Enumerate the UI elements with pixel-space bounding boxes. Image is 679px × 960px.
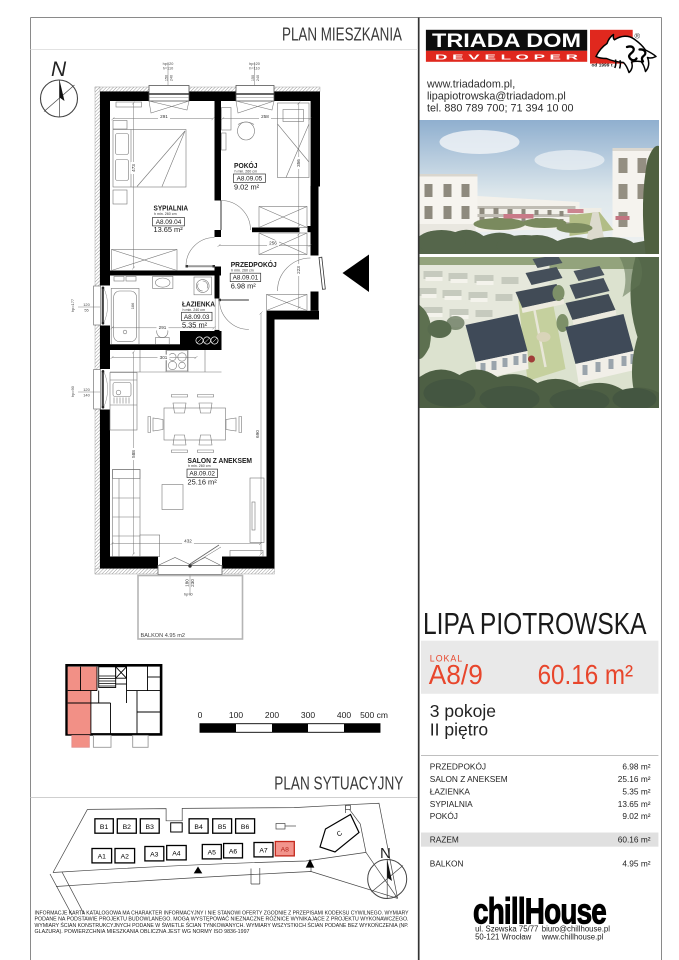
svg-text:hp=177: hp=177: [70, 299, 75, 312]
svg-text:6.98 m²: 6.98 m²: [231, 281, 257, 290]
svg-text:GLAZURA). POWIERZCHNIA MIESZKA: GLAZURA). POWIERZCHNIA MIESZKANIA OBLICZ…: [35, 929, 250, 935]
svg-text:500 cm: 500 cm: [360, 710, 388, 720]
svg-text:240: 240: [170, 75, 174, 81]
svg-text:h min. 240 cm: h min. 240 cm: [183, 308, 206, 312]
svg-text:POKÓJ: POKÓJ: [430, 811, 458, 821]
svg-text:D E V E L O P E R: D E V E L O P E R: [435, 52, 579, 61]
svg-text:hp=90: hp=90: [70, 385, 75, 397]
svg-text:A7: A7: [259, 848, 268, 855]
svg-text:h min. 260 cm: h min. 260 cm: [231, 268, 254, 272]
svg-text:25.16 m²: 25.16 m²: [188, 477, 218, 486]
svg-text:13.65 m²: 13.65 m²: [618, 799, 651, 809]
svg-text:B2: B2: [123, 824, 132, 831]
svg-text:258: 258: [261, 114, 269, 119]
svg-text:180: 180: [185, 579, 190, 587]
svg-text:240: 240: [256, 75, 260, 81]
svg-text:291: 291: [160, 114, 168, 119]
svg-text:301: 301: [160, 355, 168, 360]
svg-text:B4: B4: [194, 824, 203, 831]
svg-text:A6: A6: [229, 849, 238, 856]
svg-text:PLAN SYTUACYJNY: PLAN SYTUACYJNY: [274, 773, 403, 794]
svg-text:hp=20: hp=20: [163, 62, 174, 66]
svg-text:tel. 880 789 700; 71 394 10 00: tel. 880 789 700; 71 394 10 00: [427, 103, 574, 115]
svg-text:200: 200: [265, 710, 279, 720]
svg-text:150: 150: [251, 75, 255, 81]
svg-text:5.35 m²: 5.35 m²: [182, 321, 208, 330]
svg-text:60.16 m²: 60.16 m²: [538, 659, 634, 690]
svg-text:230: 230: [190, 579, 195, 587]
svg-text:A8: A8: [281, 847, 290, 854]
svg-text:432: 432: [184, 539, 192, 544]
svg-text:B6: B6: [241, 824, 250, 831]
svg-text:hp=20: hp=20: [249, 62, 260, 66]
svg-text:PRZEDPOKÓJ: PRZEDPOKÓJ: [430, 762, 486, 772]
svg-text:256: 256: [269, 241, 277, 246]
svg-text:400: 400: [337, 710, 351, 720]
svg-text:473: 473: [131, 164, 136, 172]
svg-text:50-121 Wrocław: 50-121 Wrocław: [475, 932, 532, 941]
svg-text:SYPIALNIA: SYPIALNIA: [430, 799, 473, 809]
svg-text:B5: B5: [218, 824, 227, 831]
svg-text:h=110: h=110: [163, 67, 173, 71]
svg-text:60.16 m²: 60.16 m²: [618, 834, 651, 844]
svg-text:291: 291: [159, 325, 167, 330]
svg-text:ŁAZIENKA: ŁAZIENKA: [430, 786, 471, 796]
svg-text:588: 588: [131, 450, 136, 458]
svg-text:LIPA PIOTROWSKA: LIPA PIOTROWSKA: [423, 607, 647, 641]
svg-text:5.35 m²: 5.35 m²: [622, 786, 650, 796]
svg-text:140: 140: [83, 393, 90, 398]
svg-text:9.02 m²: 9.02 m²: [234, 183, 260, 192]
svg-text:25.16 m²: 25.16 m²: [618, 774, 651, 784]
svg-text:13.65 m²: 13.65 m²: [154, 225, 184, 234]
svg-text:690: 690: [255, 430, 260, 438]
svg-text:SALON Z ANEKSEM: SALON Z ANEKSEM: [430, 774, 508, 784]
svg-text:55: 55: [84, 308, 88, 313]
svg-text:www.triadadom.pl,: www.triadadom.pl,: [426, 79, 515, 91]
svg-text:PODANE NA PODSTAWIE PROJEKTU B: PODANE NA PODSTAWIE PROJEKTU BUDOWLANEGO…: [35, 916, 409, 923]
svg-text:INFORMACJE KARTA KATALOGOWA MA: INFORMACJE KARTA KATALOGOWA MA CHARAKTER…: [35, 910, 409, 916]
svg-text:6.98 m²: 6.98 m²: [622, 762, 650, 772]
svg-text:h min. 260 cm: h min. 260 cm: [235, 169, 258, 173]
svg-text:9.02 m²: 9.02 m²: [622, 811, 650, 821]
svg-text:120: 120: [83, 387, 90, 392]
svg-text:300: 300: [301, 710, 315, 720]
svg-text:A4: A4: [172, 851, 181, 858]
svg-text:0: 0: [198, 710, 203, 720]
svg-text:B1: B1: [100, 824, 109, 831]
svg-text:BALKON 4.95 m2: BALKON 4.95 m2: [141, 633, 185, 639]
svg-text:od 1999 r.: od 1999 r.: [592, 63, 614, 69]
svg-text:A5: A5: [208, 850, 217, 857]
svg-text:4.95 m²: 4.95 m²: [622, 859, 650, 869]
svg-text:B3: B3: [146, 824, 155, 831]
svg-text:A8/9: A8/9: [429, 659, 483, 690]
svg-text:A3: A3: [150, 852, 159, 859]
svg-text:lipapiotrowska@triadadom.pl: lipapiotrowska@triadadom.pl: [427, 91, 566, 103]
svg-text:WYMIARY ŚCIAN KONSTRUKCYJNYCH: WYMIARY ŚCIAN KONSTRUKCYJNYCH PODANE W Ś…: [35, 921, 409, 929]
svg-text:RAZEM: RAZEM: [430, 834, 459, 844]
svg-text:A2: A2: [121, 854, 130, 861]
svg-text:120: 120: [83, 302, 90, 307]
svg-text:223: 223: [296, 266, 301, 274]
svg-text:A8.09.05: A8.09.05: [237, 176, 263, 183]
svg-text:h min. 260 cm: h min. 260 cm: [188, 464, 211, 468]
svg-text:h=110: h=110: [249, 67, 259, 71]
svg-text:hp=0: hp=0: [184, 593, 193, 597]
svg-text:h min. 260 cm: h min. 260 cm: [154, 212, 177, 216]
svg-text:TRIADA DOM: TRIADA DOM: [432, 31, 581, 52]
svg-text:www.chillhouse.pl: www.chillhouse.pl: [541, 932, 604, 941]
svg-text:BALKON: BALKON: [430, 859, 464, 869]
svg-text:A1: A1: [98, 854, 107, 861]
svg-text:II piętro: II piętro: [430, 720, 488, 740]
svg-text:356: 356: [296, 159, 301, 167]
svg-text:N: N: [51, 58, 67, 81]
svg-text:PLAN MIESZKANIA: PLAN MIESZKANIA: [282, 24, 402, 45]
svg-text:3 pokoje: 3 pokoje: [430, 701, 496, 721]
svg-text:186: 186: [130, 303, 135, 310]
svg-text:®: ®: [635, 32, 641, 41]
svg-text:100: 100: [229, 710, 243, 720]
svg-text:150: 150: [165, 75, 169, 81]
